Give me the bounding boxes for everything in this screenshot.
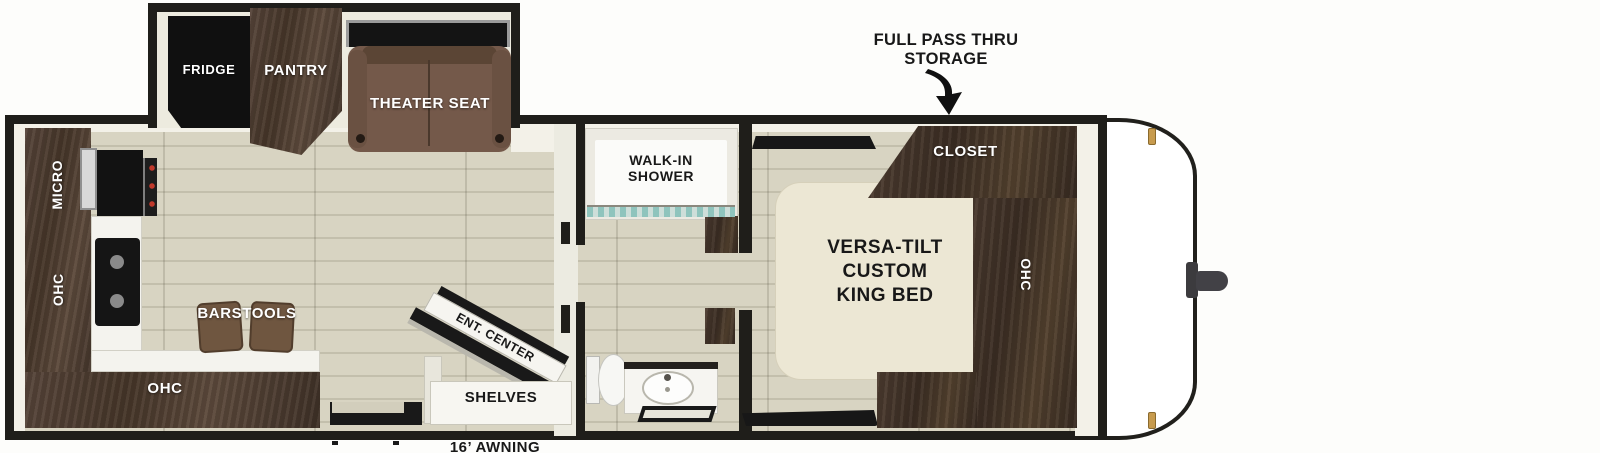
micro-label: MICRO: [50, 160, 65, 210]
awning-label: 16’ AWNING: [430, 439, 560, 453]
front-cap: [1107, 118, 1197, 440]
ohc-left-label: OHC: [50, 274, 65, 307]
kitchen-counter-horizontal: [91, 350, 320, 372]
inner-wall-band-left: [14, 124, 25, 431]
fridge-label: FRIDGE: [168, 63, 250, 77]
sink-drain-bottom: [110, 294, 124, 308]
theater-window: [346, 20, 510, 47]
walk-in-shower-label: WALK-IN SHOWER: [595, 152, 727, 184]
bedroom-ohc-label-wrap: OHC: [973, 225, 1077, 325]
stove-front: [143, 158, 157, 216]
storage-callout-line1: FULL PASS THRU: [861, 31, 1031, 50]
bedroom-window-top: [752, 136, 876, 149]
bath-cabinet-lower: [705, 308, 735, 344]
awning-tick-left: [332, 441, 338, 445]
barstools-label: BARSTOOLS: [188, 306, 306, 323]
theater-cupholder-left: [356, 134, 365, 143]
hitch-coupler-stub: [1196, 271, 1228, 291]
sink-drain-top: [110, 255, 124, 269]
bath-mat: [637, 406, 716, 422]
ohc-rear-label: OHC: [110, 381, 220, 398]
king-bed-label-line1: VERSA-TILT: [775, 236, 995, 260]
sink-drain: [665, 387, 670, 392]
micro-label-wrap: MICRO: [25, 145, 91, 225]
theater-seat-label: THEATER SEAT: [355, 96, 505, 113]
bed-foot-cabinet: [877, 372, 977, 428]
king-bed-label: VERSA-TILT CUSTOM KING BED: [775, 236, 995, 308]
bath-door-jamb-upper: [561, 222, 570, 244]
cooktop: [97, 150, 143, 216]
closet-label: CLOSET: [903, 144, 1028, 161]
entry-step-notch: [332, 402, 404, 413]
ohc-left-label-wrap: OHC: [25, 250, 91, 330]
bath-door-jamb-lower: [561, 305, 570, 333]
king-bed-label-line2: CUSTOM: [775, 260, 995, 284]
storage-callout: FULL PASS THRU STORAGE: [861, 31, 1031, 69]
shower-glass: [587, 205, 735, 217]
marker-light-top: [1148, 128, 1156, 145]
bath-cabinet-upper: [705, 216, 738, 253]
bath-bedroom-wall-upper: [739, 124, 752, 253]
king-bed-label-line3: KING BED: [775, 284, 995, 308]
shelves-label: SHELVES: [430, 389, 572, 406]
storage-callout-line2: STORAGE: [861, 50, 1031, 69]
living-bath-wall-upper: [576, 124, 585, 245]
theater-cupholder-right: [495, 134, 504, 143]
marker-light-bottom: [1148, 412, 1156, 429]
pantry-label: PANTRY: [250, 63, 342, 80]
floorplan-canvas: FRIDGE PANTRY THEATER SEAT MICRO OHC OHC…: [0, 0, 1600, 453]
sink-faucet: [664, 374, 671, 381]
awning-tick-right: [393, 441, 399, 445]
storage-arrow-icon: [922, 68, 968, 118]
kitchen-sink: [95, 238, 140, 326]
bedroom-ohc-label: OHC: [1017, 259, 1032, 292]
bedroom-front-wall-face: [1075, 124, 1098, 436]
walk-in-shower-label-line1: WALK-IN: [595, 152, 727, 168]
walk-in-shower-label-line2: SHOWER: [595, 168, 727, 184]
vanity-backsplash: [624, 362, 718, 369]
